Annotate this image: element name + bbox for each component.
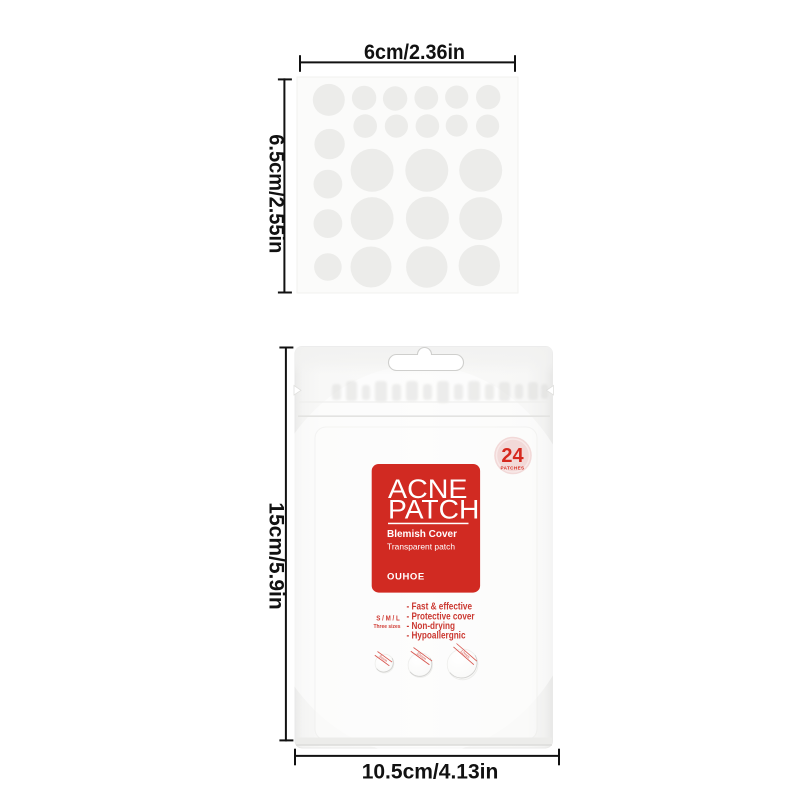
svg-text:Transparent patch: Transparent patch	[387, 541, 455, 551]
svg-text:OUHOE: OUHOE	[387, 572, 425, 583]
svg-text:6cm/2.36in: 6cm/2.36in	[364, 41, 465, 64]
svg-text:15cm/5.9in: 15cm/5.9in	[265, 502, 288, 609]
svg-text:10.5cm/4.13in: 10.5cm/4.13in	[362, 761, 499, 784]
svg-text:PATCH: PATCH	[388, 495, 479, 525]
svg-text:Three sizes: Three sizes	[374, 624, 401, 630]
svg-text:Blemish Cover: Blemish Cover	[387, 529, 457, 540]
svg-text:6.5cm/2.55in: 6.5cm/2.55in	[265, 134, 288, 253]
svg-text:S / M / L: S / M / L	[376, 614, 400, 623]
svg-text:24: 24	[501, 445, 524, 467]
svg-text:PATCHES: PATCHES	[500, 466, 524, 471]
svg-text:- Hypoallergnic: - Hypoallergnic	[407, 631, 466, 642]
